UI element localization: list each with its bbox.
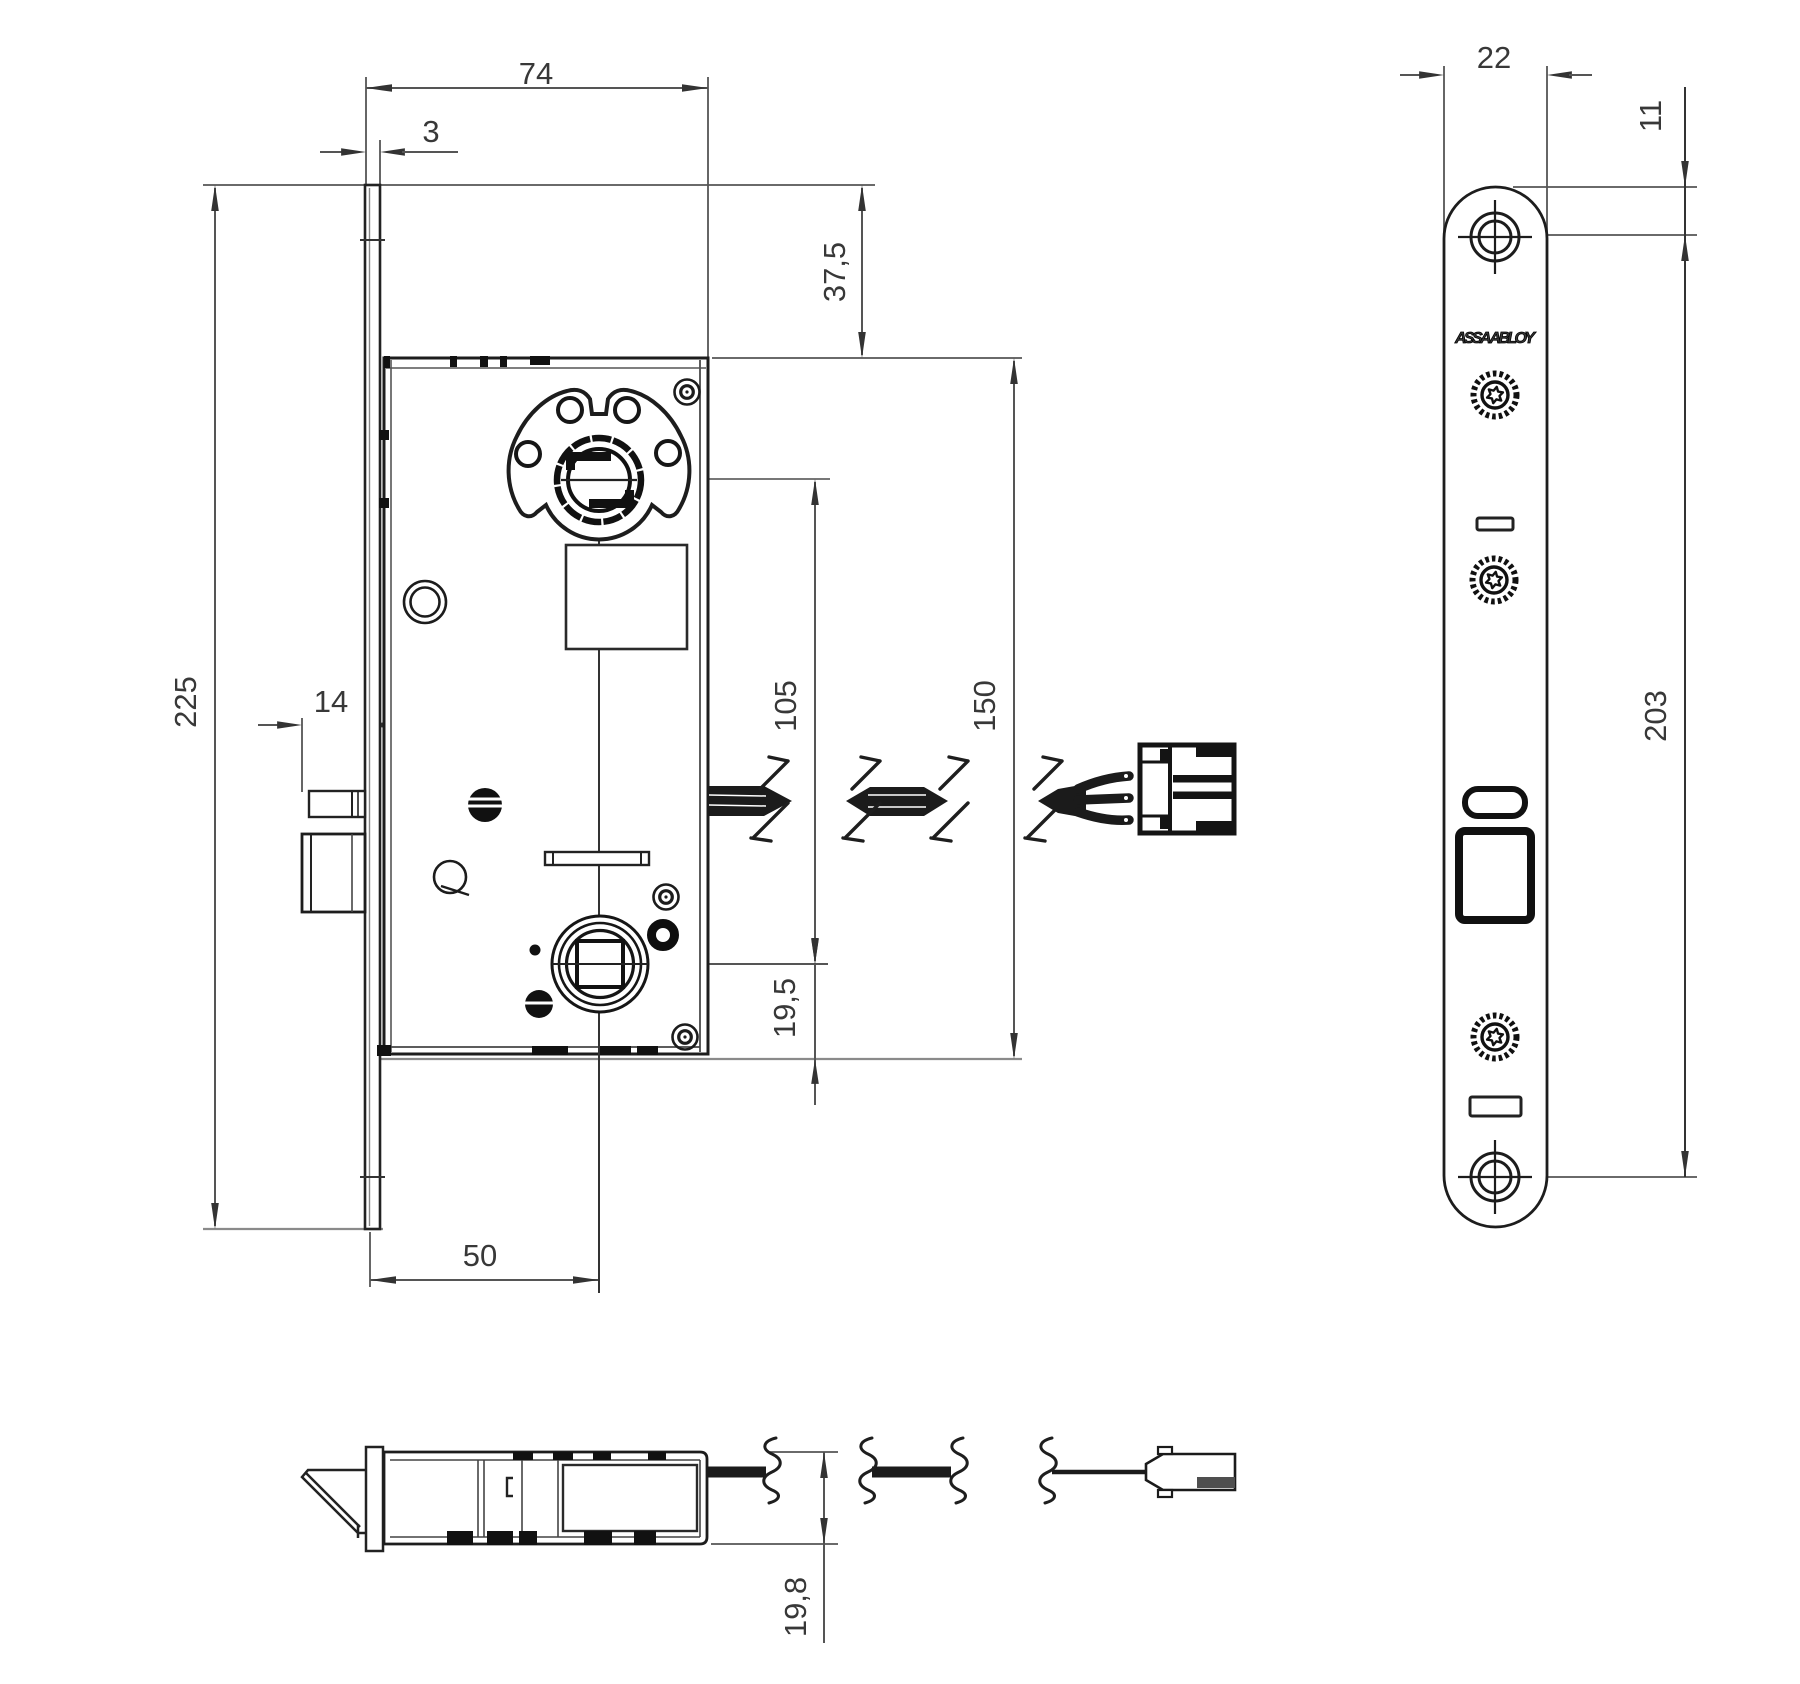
svg-text:3: 3: [422, 114, 439, 149]
svg-text:203: 203: [1638, 690, 1673, 742]
svg-text:19,5: 19,5: [767, 978, 802, 1038]
svg-text:74: 74: [519, 56, 553, 91]
svg-text:37,5: 37,5: [817, 242, 852, 302]
svg-text:11: 11: [1633, 100, 1668, 132]
svg-text:50: 50: [463, 1238, 497, 1273]
svg-text:150: 150: [967, 680, 1002, 732]
svg-text:19,8: 19,8: [778, 1577, 813, 1637]
svg-text:14: 14: [314, 684, 348, 719]
svg-text:ASSA ABLOY: ASSA ABLOY: [1454, 330, 1536, 347]
svg-text:22: 22: [1477, 40, 1511, 75]
svg-text:105: 105: [768, 680, 803, 732]
svg-text:225: 225: [168, 676, 203, 728]
